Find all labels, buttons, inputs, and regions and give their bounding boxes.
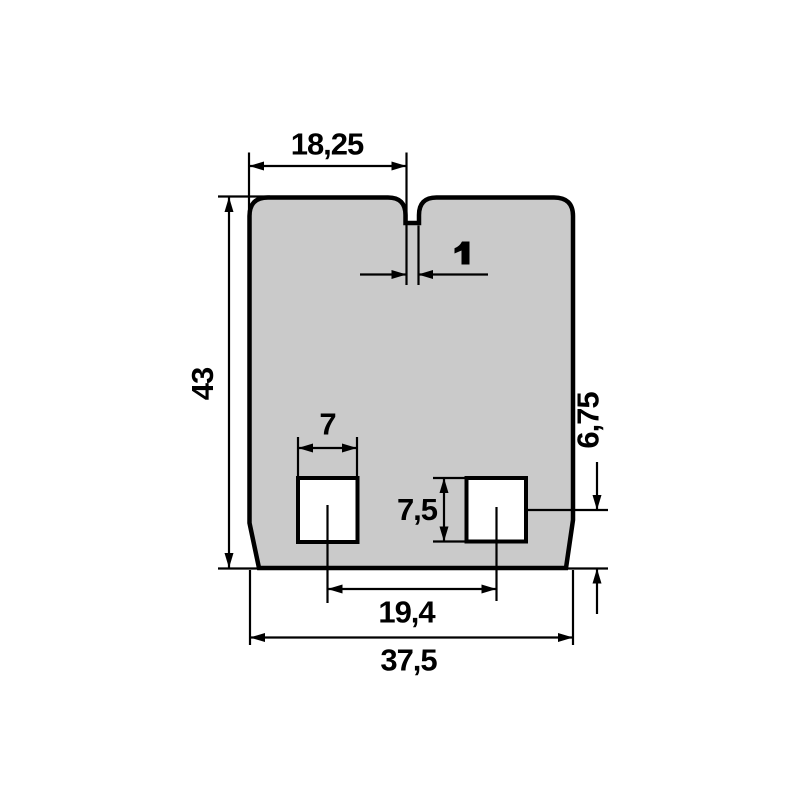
svg-text:43: 43 xyxy=(185,367,220,400)
svg-text:7: 7 xyxy=(319,407,335,442)
svg-text:19,4: 19,4 xyxy=(378,595,436,630)
svg-text:6,75: 6,75 xyxy=(571,392,606,449)
svg-text:7,5: 7,5 xyxy=(397,492,438,527)
svg-text:18,25: 18,25 xyxy=(291,127,364,162)
svg-text:37,5: 37,5 xyxy=(380,643,437,678)
